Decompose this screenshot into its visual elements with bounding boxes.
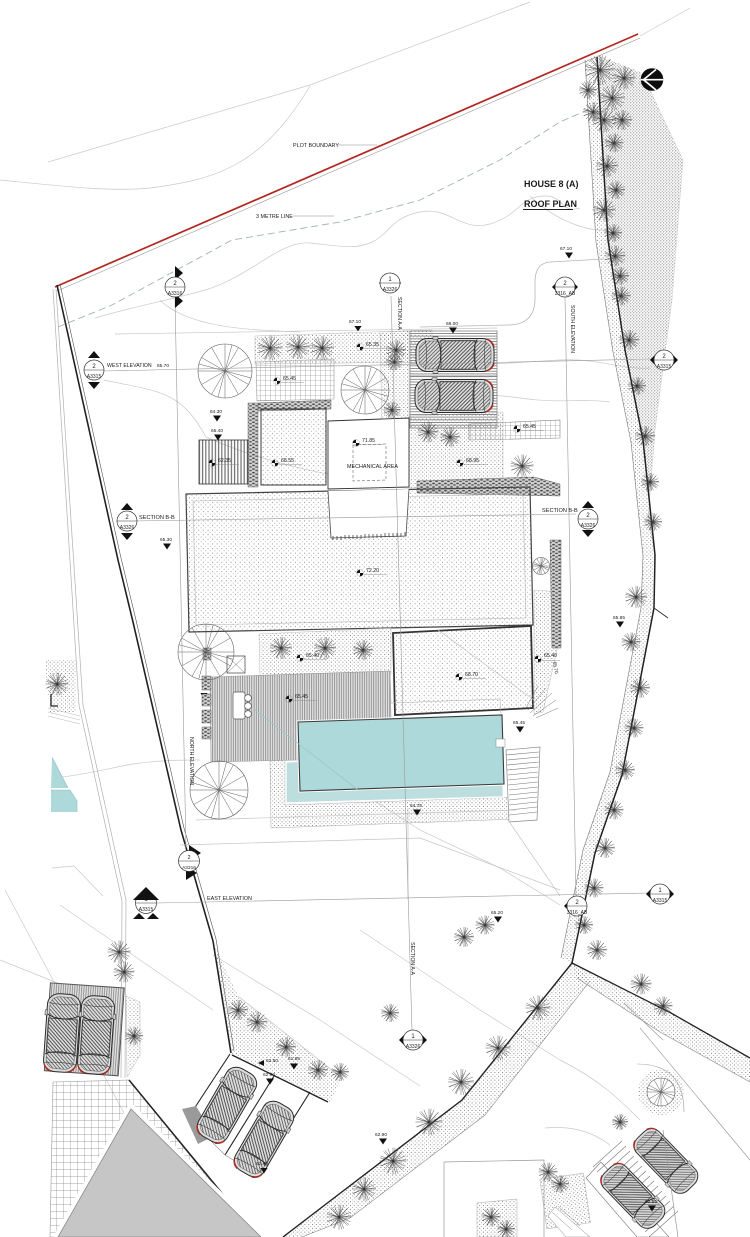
svg-text:A3316: A3316 <box>182 865 196 871</box>
svg-text:SECTION A-A: SECTION A-A <box>409 942 415 975</box>
svg-text:HOUSE 8 (A): HOUSE 8 (A) <box>524 179 579 189</box>
svg-text:67.10: 67.10 <box>560 246 572 252</box>
svg-text:68.55: 68.55 <box>281 458 294 464</box>
svg-text:65.40: 65.40 <box>211 428 223 434</box>
svg-text:A3315: A3315 <box>657 364 672 370</box>
svg-text:65.45: 65.45 <box>523 424 536 430</box>
svg-text:65.45: 65.45 <box>513 720 525 726</box>
svg-text:65.40: 65.40 <box>544 653 557 659</box>
svg-text:SECTION B-B: SECTION B-B <box>139 515 175 521</box>
svg-text:65.85: 65.85 <box>613 615 625 621</box>
svg-text:SOUTH ELEVATION: SOUTH ELEVATION <box>569 305 575 353</box>
svg-text:65.45: 65.45 <box>283 376 296 382</box>
svg-text:3 METRE LINE: 3 METRE LINE <box>256 214 293 220</box>
svg-text:64.30: 64.30 <box>210 409 222 415</box>
svg-text:65.20: 65.20 <box>491 910 503 916</box>
svg-text:WEST ELEVATION: WEST ELEVATION <box>107 363 152 369</box>
svg-text:A3315: A3315 <box>87 374 102 380</box>
svg-text:68.00: 68.00 <box>446 321 458 327</box>
svg-text:2: 2 <box>187 855 190 861</box>
svg-text:65.35: 65.35 <box>366 342 379 348</box>
svg-text:A3326: A3326 <box>581 523 596 529</box>
svg-text:62.35: 62.35 <box>218 458 231 464</box>
svg-text:A3326: A3326 <box>406 1044 421 1050</box>
svg-text:ROOF PLAN: ROOF PLAN <box>524 199 577 209</box>
svg-text:A3315: A3315 <box>653 898 668 904</box>
svg-text:65.70: 65.70 <box>157 363 169 369</box>
svg-text:A3316: A3316 <box>168 291 183 297</box>
svg-text:72.20: 72.20 <box>366 568 379 574</box>
svg-text:PLOT BOUNDARY: PLOT BOUNDARY <box>293 143 339 149</box>
svg-text:MECHANICAL AREA: MECHANICAL AREA <box>347 464 398 470</box>
svg-text:71.85: 71.85 <box>362 438 375 444</box>
svg-text:68.95: 68.95 <box>466 458 479 464</box>
svg-text:62.50: 62.50 <box>266 1058 278 1064</box>
svg-text:NORTH ELEVATION: NORTH ELEVATION <box>188 737 194 785</box>
svg-text:67.10: 67.10 <box>349 319 361 325</box>
svg-text:65.45: 65.45 <box>295 694 308 700</box>
svg-text:3316_AB: 3316_AB <box>555 291 576 297</box>
svg-text:64.75: 64.75 <box>410 803 422 809</box>
svg-text:62.90: 62.90 <box>375 1132 387 1138</box>
svg-text:62.55: 62.55 <box>645 1199 657 1205</box>
svg-text:62.40: 62.40 <box>256 1161 268 1167</box>
svg-text:68.70: 68.70 <box>465 672 478 678</box>
svg-text:A3326: A3326 <box>120 525 135 531</box>
svg-text:SECTION B-B: SECTION B-B <box>542 508 578 514</box>
svg-text:A3326: A3326 <box>383 287 398 293</box>
svg-text:61.85: 61.85 <box>288 1056 300 1062</box>
svg-text:65.40: 65.40 <box>306 653 319 659</box>
svg-text:65.30: 65.30 <box>160 537 172 543</box>
svg-text:A3315: A3315 <box>139 907 154 913</box>
svg-text:SECTION A-A: SECTION A-A <box>396 297 402 330</box>
svg-text:3316_AB: 3316_AB <box>567 910 588 916</box>
svg-text:EAST ELEVATION: EAST ELEVATION <box>207 896 252 902</box>
svg-text:62.90: 62.90 <box>263 1072 275 1078</box>
